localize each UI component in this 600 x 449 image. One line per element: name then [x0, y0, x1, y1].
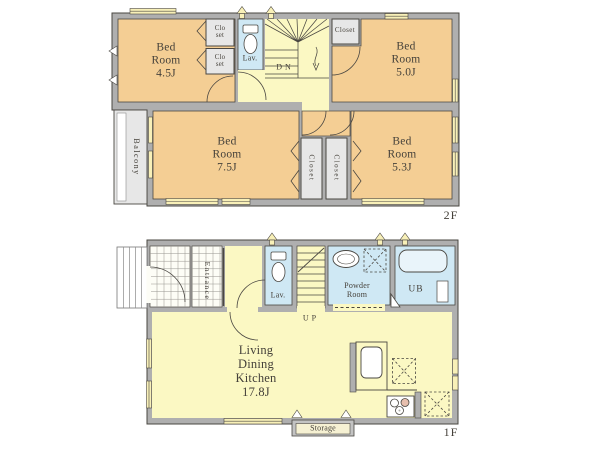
sink-icon — [333, 251, 359, 268]
entrance-floor — [150, 246, 224, 307]
stairs-up-label: UP — [303, 313, 319, 322]
bathtub-icon — [399, 250, 447, 272]
floor-1-plan — [117, 233, 458, 436]
hall-ldk-opening — [227, 306, 258, 313]
closet-small-1-label: Clo set — [215, 25, 225, 39]
hall-opening — [302, 102, 329, 111]
closet-v2-label: Closet — [333, 155, 340, 182]
floor-1-label: 1F — [444, 426, 459, 440]
floor-plan-graphics — [0, 0, 600, 449]
sliding-door-icon — [333, 304, 385, 311]
stairs-ldk-opening — [297, 306, 325, 313]
entrance-label: Entrance — [203, 262, 211, 301]
bedroom-53-label: Bed Room 5.3J — [388, 136, 417, 175]
closet-right-label: Closet — [335, 27, 355, 35]
porch-steps — [117, 247, 147, 308]
balcony-area — [114, 110, 147, 204]
floor-2-plan — [109, 7, 459, 207]
lavatory-2f-label: Lav. — [243, 53, 258, 62]
bedroom-50-label: Bed Room 5.0J — [392, 41, 421, 80]
stairs-down-label: DN — [276, 62, 294, 71]
bedroom-75-label: Bed Room 7.5J — [213, 136, 242, 175]
unit-bath-label: UB — [408, 285, 423, 296]
toilet-icon — [243, 25, 258, 54]
hall-1f-floor — [225, 246, 262, 307]
closet-v1-label: Closet — [308, 155, 315, 182]
closet-small-2-label: Clo set — [215, 54, 225, 68]
stove-icon — [387, 396, 414, 417]
stairs-up-icon — [297, 246, 325, 308]
balcony-label: Balcony — [132, 138, 140, 175]
floorplan-canvas: Bed Room 4.5J Clo set Clo set Lav. DN Cl… — [0, 0, 600, 449]
floor-2-label: 2F — [444, 209, 459, 223]
bath-counter — [437, 281, 448, 302]
ldk-label: Living Dining Kitchen 17.8J — [236, 343, 277, 400]
lavatory-1f-label: Lav. — [271, 290, 286, 299]
bedroom-45-label: Bed Room 4.5J — [152, 42, 181, 81]
toilet-icon — [271, 252, 286, 282]
powder-room-label: Powder Room — [344, 281, 370, 299]
kitchen-sink-icon — [361, 347, 382, 378]
storage-label: Storage — [310, 423, 336, 432]
